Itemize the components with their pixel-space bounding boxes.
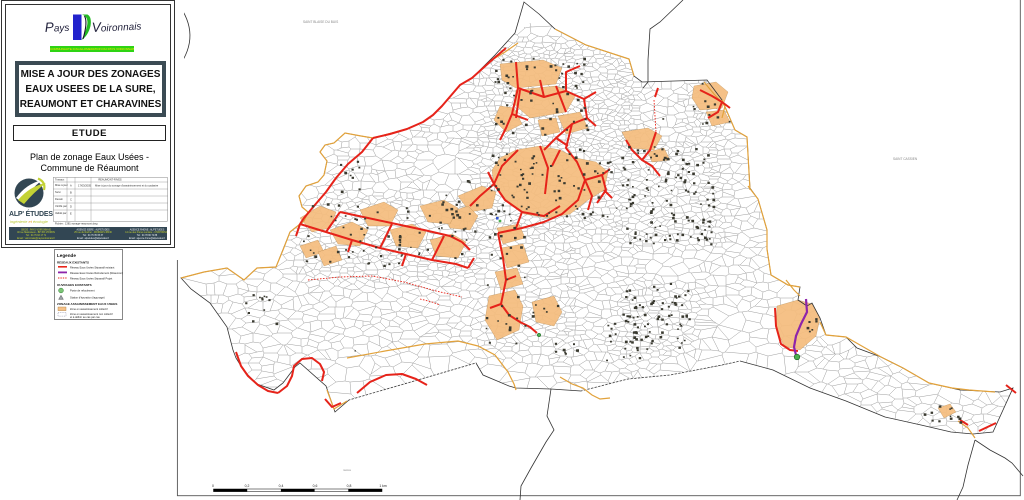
svg-text:Fichier : 1381-zonage-reaumont: Fichier : 1381-zonage-reaumont.dwg [55, 222, 98, 226]
svg-text:REAUMONT-RIVES: REAUMONT-RIVES [98, 178, 122, 182]
svg-text:ingénierie et écologie: ingénierie et écologie [10, 219, 49, 224]
svg-text:17/03/2005: 17/03/2005 [78, 184, 92, 188]
svg-text:AGENCE ISERE : ALP'ETUDES: AGENCE ISERE : ALP'ETUDES [76, 228, 110, 231]
svg-text:40 rue Mainssieux - BP 363 VOI: 40 rue Mainssieux - BP 363 VOIRON [17, 231, 55, 234]
svg-text:Legende: Legende [57, 253, 76, 258]
svg-text:Validé par: Validé par [55, 211, 67, 215]
svg-text:E: E [70, 212, 72, 216]
svg-text:metres: metres [343, 468, 352, 472]
svg-text:Station d'épuration (lagunage): Station d'épuration (lagunage) [70, 296, 105, 300]
svg-text:Tél : 04 76 93 17 71: Tél : 04 76 93 17 71 [26, 235, 47, 237]
svg-text:ZONAGE ASSAINISSEMENT EAUX USE: ZONAGE ASSAINISSEMENT EAUX USEES [57, 302, 117, 306]
svg-text:Email : voironnais@paysvoironn: Email : voironnais@paysvoironnais.fr [17, 237, 55, 240]
svg-text:et à définir au cas par cas: et à définir au cas par cas [70, 315, 100, 319]
svg-text:SAINT BLAISE DU BUIS: SAINT BLAISE DU BUIS [303, 20, 338, 24]
svg-text:Tél : 04 78 96 72 88: Tél : 04 78 96 72 88 [137, 235, 158, 237]
svg-text:AGENCE RHONE : ALP'ETUDES: AGENCE RHONE : ALP'ETUDES [130, 228, 165, 231]
svg-text:B: B [70, 191, 72, 195]
svg-text:A: A [70, 184, 72, 188]
svg-text:Travaux: Travaux [55, 178, 65, 182]
svg-text:Vérifié par: Vérifié par [55, 204, 67, 208]
svg-text:SIEGE : PAYS VOIRONNAIS: SIEGE : PAYS VOIRONNAIS [21, 228, 51, 231]
svg-text:Voironnais: Voironnais [91, 17, 141, 35]
svg-text:D: D [70, 205, 72, 209]
svg-text:0: 0 [212, 484, 214, 488]
svg-text:Mise à jour du zonage d'assain: Mise à jour du zonage d'assainissement e… [95, 184, 159, 188]
svg-text:RESEAUX EXISTANTS: RESEAUX EXISTANTS [57, 261, 89, 265]
svg-text:Pays: Pays [44, 19, 69, 35]
svg-text:Email : alpetudes@alpetudes.fr: Email : alpetudes@alpetudes.fr [77, 237, 109, 240]
svg-text:Réseau Eaux Usées Refoulement: Réseau Eaux Usées Refoulement (Réaumont) [70, 271, 123, 275]
svg-text:Suivi: Suivi [55, 190, 61, 194]
svg-text:Réseau Eaux Usées Séparatif ex: Réseau Eaux Usées Séparatif existant [70, 265, 115, 269]
svg-text:Mise à jour: Mise à jour [55, 183, 68, 187]
svg-text:OUVRAGES EXISTANTS: OUVRAGES EXISTANTS [57, 283, 92, 287]
svg-text:Dessin: Dessin [55, 197, 63, 201]
svg-text:Email : agence.rhone@alpetudes: Email : agence.rhone@alpetudes.fr [129, 237, 165, 240]
svg-text:Tél : 04 76 35 65 37: Tél : 04 76 35 65 37 [83, 235, 104, 237]
svg-text:SAINT CASSIEN: SAINT CASSIEN [893, 157, 918, 161]
svg-text:Poste de refoulement: Poste de refoulement [70, 289, 95, 293]
svg-text:0,6: 0,6 [313, 484, 318, 488]
svg-text:0,8: 0,8 [347, 484, 352, 488]
svg-text:0,2: 0,2 [245, 484, 250, 488]
svg-text:1 km: 1 km [379, 484, 387, 488]
svg-text:25 rue du Rocher - MOIRANS 384: 25 rue du Rocher - MOIRANS 38430 [74, 231, 112, 234]
svg-text:Zone en assainissement collect: Zone en assainissement collectif [70, 307, 108, 311]
svg-text:ALP' ÉTUDES: ALP' ÉTUDES [9, 209, 53, 218]
svg-text:Réseau Eaux Usées Séparatif Pr: Réseau Eaux Usées Séparatif Projet [70, 276, 113, 280]
svg-text:0,4: 0,4 [279, 484, 284, 488]
svg-text:14 rue des Frères Lumière - CH: 14 rue des Frères Lumière - CHAPONNAY [125, 231, 167, 234]
svg-text:C: C [70, 198, 72, 202]
